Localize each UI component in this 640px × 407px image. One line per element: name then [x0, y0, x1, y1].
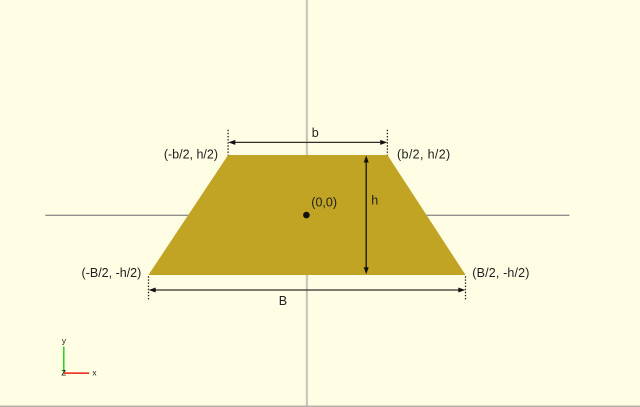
svg-text:h: h: [371, 194, 378, 208]
svg-text:(0,0): (0,0): [311, 195, 337, 209]
svg-text:(b/2, h/2): (b/2, h/2): [397, 148, 451, 162]
svg-text:B: B: [279, 294, 287, 308]
svg-text:z: z: [61, 368, 66, 379]
svg-text:(-B/2, -h/2): (-B/2, -h/2): [82, 266, 142, 280]
svg-text:(-b/2, h/2): (-b/2, h/2): [164, 148, 218, 162]
svg-text:(B/2, -h/2): (B/2, -h/2): [472, 266, 529, 280]
svg-text:b: b: [312, 126, 319, 140]
